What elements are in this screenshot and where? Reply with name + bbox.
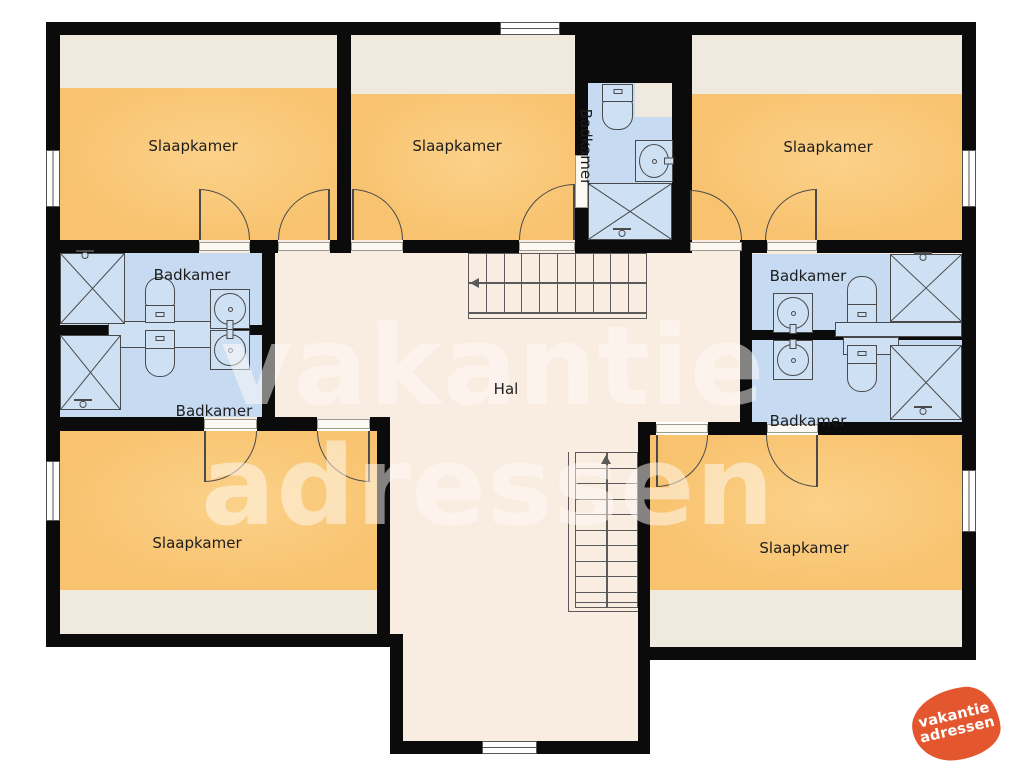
sink-icon	[773, 340, 813, 380]
door-threshold	[767, 242, 817, 251]
shower-icon	[890, 254, 962, 322]
shower-head-icon	[914, 251, 932, 261]
sink-icon	[635, 140, 673, 182]
room-label-bedroom-bottom-left: Slaapkamer	[152, 534, 241, 552]
door-threshold	[351, 242, 403, 251]
room-label-bathroom-right-top: Badkamer	[770, 267, 847, 285]
wall	[575, 35, 692, 83]
toilet-icon	[847, 276, 877, 323]
staircase-upper-centerline	[468, 282, 647, 284]
toilet-icon	[145, 330, 175, 377]
sink-icon	[773, 293, 813, 333]
wall	[672, 83, 692, 240]
room-label-hall: Hal	[494, 380, 519, 398]
wall	[638, 647, 976, 660]
room-label-bathroom-left-top: Badkamer	[154, 266, 231, 284]
room-label-bedroom-top-middle: Slaapkamer	[412, 137, 501, 155]
door-threshold	[278, 242, 330, 251]
room-label-bedroom-bottom-right: Slaapkamer	[759, 539, 848, 557]
wall	[337, 35, 351, 253]
room-label-bathroom-right-bottom: Badkamer	[770, 412, 847, 430]
shower-head-icon	[613, 227, 631, 237]
logo-text: vakantie adressen	[915, 700, 996, 746]
room-label-bathroom-left-bottom: Badkamer	[176, 402, 253, 420]
window	[962, 150, 976, 207]
room-label-bedroom-top-left: Slaapkamer	[148, 137, 237, 155]
door-threshold	[519, 242, 575, 251]
wall	[817, 240, 962, 253]
wall	[46, 634, 390, 647]
wall	[588, 240, 692, 253]
window	[46, 461, 60, 521]
window	[46, 150, 60, 207]
toilet-icon	[602, 84, 633, 130]
wall	[390, 634, 403, 754]
window	[482, 741, 537, 754]
wall	[403, 240, 519, 253]
shower-head-icon	[914, 405, 932, 415]
shower-head-icon	[76, 249, 94, 259]
door-threshold	[690, 242, 742, 251]
bathroom-middle-notch	[635, 83, 672, 117]
stairs-direction-arrow	[470, 278, 479, 288]
room-label-bathroom-middle: Badkamer	[577, 109, 595, 186]
vanity-counter	[835, 322, 962, 337]
door-threshold	[199, 242, 250, 251]
wall	[962, 22, 976, 660]
wall	[575, 240, 588, 253]
watermark-line-2: adressen	[201, 422, 775, 550]
window	[500, 22, 560, 35]
watermark-line-1: vakantie	[221, 302, 766, 430]
staircase-lower-landing	[575, 602, 638, 608]
window	[962, 470, 976, 532]
vakantieadressen-logo: vakantie adressen	[908, 684, 1003, 765]
shower-icon	[60, 253, 125, 324]
shower-head-icon	[74, 398, 92, 408]
room-label-bedroom-top-right: Slaapkamer	[783, 138, 872, 156]
toilet-icon	[847, 345, 877, 392]
wall	[46, 240, 199, 253]
floor-plan: vakantie adressen	[0, 0, 1024, 768]
